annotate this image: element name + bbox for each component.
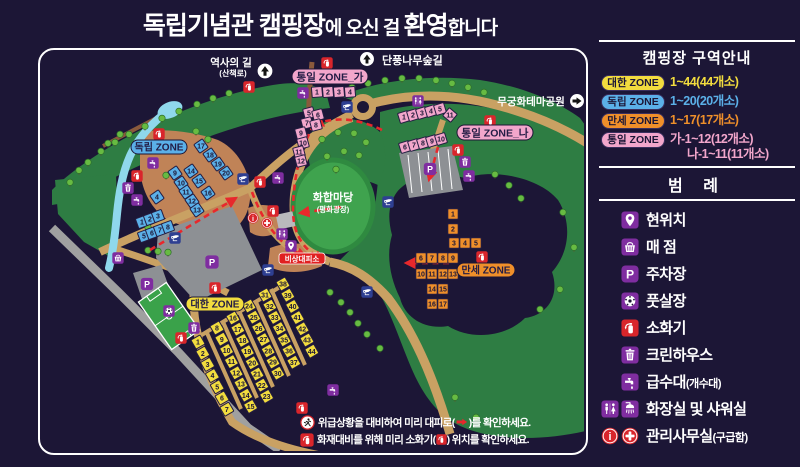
site-manse-11: 11 <box>427 269 437 279</box>
svg-text:11: 11 <box>228 359 236 366</box>
history-road-label: 역사의 길 <box>210 56 252 69</box>
svg-text:3: 3 <box>452 241 456 248</box>
svg-text:16: 16 <box>229 316 237 323</box>
legend-item-2: 주차장 <box>599 260 795 287</box>
water-icon <box>297 87 308 98</box>
campground-map-poster: P i <box>0 0 800 467</box>
restroom-icon <box>601 400 619 418</box>
svg-text:14: 14 <box>242 393 250 400</box>
svg-text:39: 39 <box>284 293 292 300</box>
svg-text:9: 9 <box>299 131 303 138</box>
svg-text:33: 33 <box>271 315 279 322</box>
svg-text:14: 14 <box>428 287 436 294</box>
svg-text:2: 2 <box>411 113 415 120</box>
water-icon <box>621 373 639 391</box>
zone-info-row-1: 독립 ZONE1~20(20개소) <box>601 94 795 110</box>
svg-text:20: 20 <box>222 171 230 178</box>
svg-text:7: 7 <box>225 407 229 414</box>
restroom-icon <box>412 95 423 106</box>
svg-text:18: 18 <box>239 338 247 345</box>
pin-icon <box>285 240 296 251</box>
legend-item-3: 풋살장 <box>599 287 795 314</box>
pin-icon <box>621 211 639 229</box>
svg-text:6: 6 <box>419 256 423 263</box>
svg-text:17: 17 <box>439 302 447 309</box>
water-icon <box>327 384 338 395</box>
svg-text:17: 17 <box>234 327 242 334</box>
svg-text:4: 4 <box>463 241 467 248</box>
fire-icon <box>452 144 463 155</box>
legend-label: 현위치 <box>646 209 686 230</box>
tree-icon <box>377 345 383 352</box>
svg-text:13: 13 <box>193 208 201 215</box>
notice-evacuation: 위급상황을 대비하여 미리 대피로()를 확인하세요. <box>300 414 586 431</box>
svg-text:대한 ZONE: 대한 ZONE <box>191 298 240 311</box>
svg-text:12: 12 <box>232 370 240 377</box>
legend-item-5: 크린하우스 <box>599 341 795 368</box>
legend-item-8: 관리사무실(구급함) <box>599 422 795 449</box>
trash-icon <box>459 156 470 167</box>
svg-text:19: 19 <box>214 162 222 169</box>
divider <box>599 199 795 201</box>
zone-info-row-2: 만세 ZONE1~17(17개소) <box>601 113 795 129</box>
plaza-sublabel: (평화광장) <box>317 204 350 214</box>
roundabout <box>354 98 373 117</box>
tree-icon <box>338 299 344 306</box>
svg-text:17: 17 <box>197 144 205 151</box>
legend-label: 풋살장 <box>646 290 686 311</box>
history-road-sublabel: (산책로) <box>219 68 247 78</box>
water-icon <box>463 170 474 181</box>
cctv-icon <box>237 173 248 184</box>
tree-icon <box>347 309 353 316</box>
svg-text:독립 ZONE: 독립 ZONE <box>135 141 184 154</box>
svg-text:16: 16 <box>428 302 436 309</box>
svg-text:비상대피소: 비상대피소 <box>285 254 320 264</box>
svg-text:28: 28 <box>264 348 272 355</box>
svg-text:44: 44 <box>308 349 316 356</box>
sidebar: 캠핑장 구역안내 대한 ZONE1~44(44개소)독립 ZONE1~20(20… <box>599 40 795 449</box>
zone-range: 1~44(44개소) <box>670 75 738 90</box>
svg-text:1: 1 <box>196 340 200 347</box>
fire-icon <box>296 402 307 413</box>
svg-text:43: 43 <box>303 338 311 345</box>
svg-text:10: 10 <box>437 137 445 144</box>
svg-text:1: 1 <box>315 90 319 97</box>
aid-icon <box>261 217 272 228</box>
svg-text:29: 29 <box>269 360 277 367</box>
aid-icon <box>621 427 639 445</box>
svg-text:10: 10 <box>417 272 425 279</box>
svg-text:11: 11 <box>428 272 436 279</box>
svg-text:3: 3 <box>337 90 341 97</box>
notice-evac-pre: 위급상황을 대비하여 미리 대피로( <box>318 417 455 429</box>
svg-text:38: 38 <box>279 282 287 289</box>
svg-text:5: 5 <box>142 234 146 241</box>
svg-text:15: 15 <box>195 179 203 186</box>
svg-text:1: 1 <box>140 220 144 227</box>
legend-label: 급수대(개수대) <box>646 371 721 392</box>
zone-info-row-0: 대한 ZONE1~44(44개소) <box>601 75 795 91</box>
svg-text:15: 15 <box>439 287 447 294</box>
parking-icon <box>141 278 153 290</box>
parking-icon <box>424 163 436 175</box>
svg-text:7: 7 <box>430 256 434 263</box>
svg-text:24: 24 <box>245 304 253 311</box>
zone-badge-tongil-na: 통일 ZONE_나 <box>457 125 533 140</box>
svg-text:12: 12 <box>188 199 196 206</box>
legend-label: 주차장 <box>646 263 686 284</box>
site-manse-7: 7 <box>427 253 437 263</box>
svg-text:2: 2 <box>201 351 205 358</box>
zone-badge-manse: 만세 ZONE <box>457 263 515 277</box>
svg-text:20: 20 <box>248 360 256 367</box>
svg-text:10: 10 <box>177 181 185 188</box>
site-manse-10: 10 <box>416 269 426 279</box>
site-manse-17: 17 <box>438 299 448 309</box>
page-title: 독립기념관 캠핑장에 오신 걸 환영합니다 <box>0 6 640 42</box>
site-manse-16: 16 <box>427 299 437 309</box>
svg-text:42: 42 <box>298 326 306 333</box>
fire-extinguisher-icon <box>436 434 447 445</box>
site-manse-14: 14 <box>427 284 437 294</box>
fire-icon <box>131 170 142 181</box>
legend-item-6: 급수대(개수대) <box>599 368 795 395</box>
title-tail: 합니다 <box>448 18 497 39</box>
basket-icon <box>621 238 639 256</box>
shower-icon <box>621 400 639 418</box>
legend-item-0: 현위치 <box>599 206 795 233</box>
fire-icon <box>267 205 278 216</box>
svg-text:12: 12 <box>439 272 447 279</box>
svg-text:9: 9 <box>430 139 434 146</box>
svg-text:7: 7 <box>412 143 416 150</box>
svg-text:18: 18 <box>206 153 214 160</box>
svg-text:16: 16 <box>204 191 212 198</box>
svg-text:27: 27 <box>260 337 268 344</box>
svg-text:11: 11 <box>446 113 454 120</box>
cctv-icon <box>341 101 352 112</box>
shelter-badge: 비상대피소 <box>279 253 325 264</box>
notice-evac-post: )를 확인하세요. <box>469 417 531 429</box>
soccer-icon <box>163 305 174 316</box>
legend-title: 범 례 <box>599 168 795 199</box>
zone-info-title: 캠핑장 구역안내 <box>599 42 795 72</box>
svg-text:9: 9 <box>220 337 224 344</box>
legend-label: 매 점 <box>646 236 676 257</box>
svg-text:41: 41 <box>294 315 302 322</box>
svg-text:9: 9 <box>173 171 177 178</box>
tree-icon <box>364 331 370 338</box>
svg-text:30: 30 <box>274 371 282 378</box>
site-manse-1: 1 <box>448 209 458 219</box>
site-manse-9: 9 <box>448 253 458 263</box>
notice-fire: 화재대비를 위해 미리 소화기() 위치를 확인하세요. <box>300 431 586 448</box>
site-manse-2: 2 <box>448 224 458 234</box>
svg-text:4: 4 <box>155 195 159 202</box>
cctv-icon <box>382 196 393 207</box>
legend-label: 관리사무실(구급함) <box>646 425 748 446</box>
svg-text:1: 1 <box>402 115 406 122</box>
legend-item-1: 매 점 <box>599 233 795 260</box>
fire-icon <box>175 332 186 343</box>
svg-text:8: 8 <box>166 225 170 232</box>
cctv-icon <box>169 232 180 243</box>
trash-icon <box>621 346 639 364</box>
evac-arrow-icon <box>455 416 469 428</box>
svg-text:23: 23 <box>263 394 271 401</box>
svg-text:13: 13 <box>237 382 245 389</box>
legend-item-4: 소화기 <box>599 314 795 341</box>
notice-fire-pre: 화재대비를 위해 미리 소화기( <box>317 434 436 446</box>
svg-text:2: 2 <box>148 217 152 224</box>
site-tongil_ga-4: 4 <box>344 86 355 97</box>
svg-text:15: 15 <box>247 404 255 411</box>
svg-text:36: 36 <box>285 349 293 356</box>
site-tongil_ga-1: 1 <box>311 86 322 97</box>
site-tongil_ga-8: 8 <box>310 119 323 132</box>
zone-range: 1~17(17개소) <box>670 113 738 128</box>
svg-text:2: 2 <box>451 227 455 234</box>
fire-icon <box>321 57 332 68</box>
notice-box: 위급상황을 대비하여 미리 대피로()를 확인하세요. 화재대비를 위해 미리 … <box>300 414 586 448</box>
trash-icon <box>122 182 133 193</box>
plaza-label: 화합마당 <box>313 190 353 204</box>
zone-range: 가-1~12(12개소)나-1~11(11개소) <box>670 132 769 162</box>
basket-icon <box>112 252 123 263</box>
svg-text:19: 19 <box>244 349 252 356</box>
svg-text:4: 4 <box>348 90 352 97</box>
tree-icon <box>355 320 361 327</box>
svg-text:13: 13 <box>449 272 457 279</box>
title-emph: 환영 <box>404 12 448 40</box>
svg-text:6: 6 <box>150 231 154 238</box>
info-icon <box>247 212 258 223</box>
svg-text:9: 9 <box>451 256 455 263</box>
map-artwork: 1234567891011121314151617181920212223242… <box>52 52 592 467</box>
legend-item-7: 화장실 및 샤워실 <box>599 395 795 422</box>
fire-icon <box>476 251 487 262</box>
svg-text:3: 3 <box>420 111 424 118</box>
arrowup-icon <box>257 63 273 79</box>
svg-text:6: 6 <box>403 145 407 152</box>
svg-text:7: 7 <box>305 121 309 128</box>
svg-text:6: 6 <box>220 396 224 403</box>
legend-sublabel: (개수대) <box>686 378 721 390</box>
cctv-icon <box>361 286 372 297</box>
svg-text:8: 8 <box>421 141 425 148</box>
site-manse-4: 4 <box>460 238 470 248</box>
svg-text:8: 8 <box>441 256 445 263</box>
title-main: 독립기념관 캠핑장 <box>143 12 325 40</box>
site-manse-6: 6 <box>416 253 426 263</box>
fire-icon <box>243 81 254 92</box>
svg-text:4: 4 <box>210 373 214 380</box>
tree-icon <box>145 247 151 254</box>
zone-badge-tongil-ga: 통일 ZONE_가 <box>292 69 368 84</box>
svg-text:10: 10 <box>223 348 231 355</box>
svg-text:만세 ZONE: 만세 ZONE <box>462 264 511 277</box>
parking-icon <box>205 255 218 268</box>
svg-text:22: 22 <box>258 383 266 390</box>
site-manse-8: 8 <box>438 253 448 263</box>
legend-label: 화장실 및 샤워실 <box>646 398 746 419</box>
svg-text:3: 3 <box>156 214 160 221</box>
info-icon <box>601 427 619 445</box>
legend-items: 현위치매 점주차장풋살장소화기크린하우스급수대(개수대)화장실 및 샤워실관리사… <box>599 206 795 449</box>
svg-text:40: 40 <box>289 304 297 311</box>
svg-text:통일 ZONE_나: 통일 ZONE_나 <box>462 127 529 140</box>
fire-icon <box>153 128 164 139</box>
legend-label: 소화기 <box>646 317 686 338</box>
svg-text:32: 32 <box>266 304 274 311</box>
arrowright-icon <box>570 94 585 109</box>
svg-text:21: 21 <box>253 372 261 379</box>
svg-text:통일 ZONE_가: 통일 ZONE_가 <box>297 71 364 84</box>
fire-icon <box>621 319 639 337</box>
zone-info-rows: 대한 ZONE1~44(44개소)독립 ZONE1~20(20개소)만세 ZON… <box>599 75 795 162</box>
svg-text:34: 34 <box>276 326 284 333</box>
svg-text:5: 5 <box>215 384 219 391</box>
legend-sublabel: (구급함) <box>713 432 748 444</box>
parking-icon <box>621 265 639 283</box>
fire-icon <box>209 282 220 293</box>
svg-text:8: 8 <box>215 326 219 333</box>
restroom-icon <box>276 228 287 239</box>
svg-text:25: 25 <box>250 315 258 322</box>
trash-icon <box>188 322 199 333</box>
svg-text:37: 37 <box>290 360 298 367</box>
zone-info-row-3: 통일 ZONE가-1~12(12개소)나-1~11(11개소) <box>601 132 795 162</box>
soccer-icon <box>621 292 639 310</box>
svg-text:8: 8 <box>314 123 318 130</box>
svg-text:1: 1 <box>451 212 455 219</box>
svg-text:5: 5 <box>438 107 442 114</box>
svg-text:5: 5 <box>474 241 478 248</box>
svg-text:4: 4 <box>429 109 433 116</box>
site-tongil_na-10: 10 <box>435 133 448 146</box>
zone-range: 1~20(20개소) <box>670 94 738 109</box>
mugunghwa-label: 무궁화테마공원 <box>497 95 565 108</box>
zone-badge: 통일 ZONE <box>601 132 665 148</box>
legend-label: 크린하우스 <box>646 344 713 365</box>
svg-text:7: 7 <box>158 228 162 235</box>
site-tongil_ga-3: 3 <box>333 86 344 97</box>
tree-icon <box>327 289 333 296</box>
svg-text:2: 2 <box>326 90 330 97</box>
svg-text:11: 11 <box>182 190 190 197</box>
svg-text:14: 14 <box>187 169 195 176</box>
maple-road-label: 단풍나무숲길 <box>382 53 443 67</box>
site-manse-5: 5 <box>471 238 481 248</box>
zone-badge: 만세 ZONE <box>601 113 665 129</box>
zone-badge-dokrip: 독립 ZONE <box>131 140 187 154</box>
water-icon <box>272 172 283 183</box>
water-icon <box>131 194 142 205</box>
zone-badge: 대한 ZONE <box>601 75 665 91</box>
site-manse-12: 12 <box>438 269 448 279</box>
site-manse-3: 3 <box>449 238 459 248</box>
svg-text:12: 12 <box>297 159 305 166</box>
svg-text:3: 3 <box>206 362 210 369</box>
svg-text:26: 26 <box>255 326 263 333</box>
svg-text:31: 31 <box>261 293 269 300</box>
fire-icon <box>254 176 265 187</box>
zone-badge: 독립 ZONE <box>601 94 665 110</box>
site-tongil_ga-2: 2 <box>322 86 333 97</box>
site-tongil_ga-12: 12 <box>295 155 308 168</box>
cctv-icon <box>262 264 273 275</box>
water-icon <box>147 157 158 168</box>
notice-fire-post: ) 위치를 확인하세요. <box>447 434 529 446</box>
svg-text:35: 35 <box>280 337 288 344</box>
arrowup-icon <box>360 52 375 67</box>
zone-badge-daehan: 대한 ZONE <box>186 297 244 311</box>
title-mid: 에 오신 걸 <box>325 18 404 39</box>
site-manse-15: 15 <box>438 284 448 294</box>
